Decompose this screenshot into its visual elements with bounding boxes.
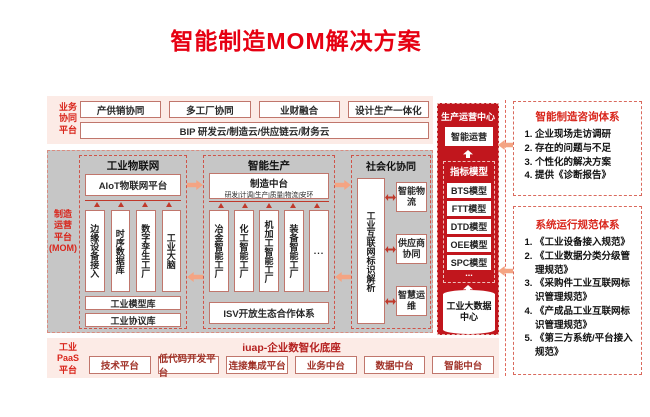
metrics-title: 指标模型 [447, 164, 491, 178]
identifier-resolution-box: 工业互联网标识解析 [357, 178, 385, 324]
paas-item-business: 业务中台 [295, 356, 357, 374]
link-arrow-icon [385, 194, 396, 201]
paas-item-ai: 智能中台 [432, 356, 494, 374]
mom-area: 制造 运营 平台 (MOM) 工业物联网 AIoT物联网平台 边缘设备接入 时序… [47, 150, 433, 333]
standards-list: 《工业设备接入规范》 《工业数据分类分级管理规范》 《采购件工业互联网标识管理规… [518, 236, 637, 360]
up-arrow-icon [463, 150, 473, 158]
ops-center-title: 生产运营中心 [438, 110, 498, 123]
hub-subtitle: 研发|计调|生产|质量|物流|安环 [213, 190, 325, 200]
paas-item-lowcode: 低代码开发平台 [158, 356, 220, 374]
iot-connector-arrows-icon [85, 200, 181, 209]
paas-title: iuap-企业数智化底座 [89, 340, 494, 355]
data-center-cylinder: 工业大数据中心 [443, 294, 495, 330]
consulting-item: 个性化的解决方案 [535, 156, 637, 170]
paas-item-tech: 技术平台 [89, 356, 151, 374]
standards-panel: 系统运行规范体系 《工业设备接入规范》 《工业数据分类分级管理规范》 《采购件工… [513, 206, 642, 375]
link-arrow-icon [385, 246, 396, 253]
production-pillar-more: ... [309, 210, 329, 292]
link-arrow-icon [385, 298, 396, 305]
production-pillar-chemical: 化工智能工厂 [234, 210, 254, 292]
aiot-platform-box: AIoT物联网平台 [85, 174, 181, 196]
standards-title: 系统运行规范体系 [518, 217, 637, 232]
iot-pillar-edge: 边缘设备接入 [85, 210, 105, 292]
model-library-box: 工业模型库 [85, 296, 181, 310]
divider-dashed-line [505, 100, 506, 376]
production-pillar-machining: 机加工智能工厂 [259, 210, 279, 292]
social-item-maintenance: 智慧运维 [396, 286, 427, 316]
business-item-finance: 业财融合 [259, 101, 340, 118]
social-item-logistics: 智能物流 [396, 182, 427, 212]
model-box-bts: BTS模型 [447, 183, 491, 198]
consulting-item: 提供《诊断报告》 [535, 169, 637, 183]
iot-pillar-brain: 工业大脑 [162, 210, 182, 292]
paas-band: 工业 PaaS 平台 iuap-企业数智化底座 技术平台 低代码开发平台 连接集… [47, 338, 499, 378]
flow-arrow-right-icon [187, 180, 203, 190]
iot-pillar-twin: 数字孪生工厂 [136, 210, 156, 292]
model-box-oee: OEE模型 [447, 237, 491, 252]
manufacturing-hub-box: 制造中台 研发|计调|生产|质量|物流|安环 [209, 173, 329, 199]
flow-arrow-left-icon [498, 266, 514, 276]
smart-ops-box: 智能运营 [445, 127, 493, 146]
social-section: 社会化协同 工业互联网标识解析 智能物流 供应商协同 智慧运维 [351, 155, 431, 329]
standards-item: 《工业设备接入规范》 [535, 236, 637, 250]
paas-band-label: 工业 PaaS 平台 [50, 342, 86, 376]
social-section-title: 社会化协同 [352, 158, 430, 173]
business-item-psx: 产供销协同 [80, 101, 161, 118]
business-item-multiplant: 多工厂协同 [169, 101, 250, 118]
business-band: 业务 协同 平台 产供销协同 多工厂协同 业财融合 设计生产一体化 BIP 研发… [47, 96, 433, 144]
flow-arrow-left-icon [187, 272, 203, 282]
standards-item: 《采购件工业互联网标识管理规范》 [535, 277, 637, 305]
slide: 智能制造MOM解决方案 业务 协同 平台 产供销协同 多工厂协同 业财融合 设计… [0, 0, 650, 417]
bip-cloud-box: BIP 研发云/制造云/供应链云/财务云 [80, 122, 429, 139]
production-pillar-metallurgy: 冶金智能工厂 [209, 210, 229, 292]
model-box-dtd: DTD模型 [447, 219, 491, 234]
consulting-item: 存在的问题与不足 [535, 142, 637, 156]
production-section: 智能生产 制造中台 研发|计调|生产|质量|物流|安环 冶金智能工厂 化工智能工… [203, 155, 335, 329]
paas-item-data: 数据中台 [364, 356, 426, 374]
iot-section-title: 工业物联网 [80, 158, 186, 173]
production-pillar-equipment: 装备智能工厂 [284, 210, 304, 292]
page-title: 智能制造MOM解决方案 [0, 22, 592, 56]
ops-center-column: 生产运营中心 智能运营 指标模型 BTS模型 FTT模型 DTD模型 OEE模型… [437, 103, 499, 335]
mom-label: 制造 运营 平台 (MOM) [48, 209, 78, 254]
production-section-title: 智能生产 [204, 158, 334, 173]
consulting-item: 企业现场走访调研 [535, 128, 637, 142]
metrics-group: 指标模型 BTS模型 FTT模型 DTD模型 OEE模型 SPC模型 ... [443, 161, 495, 283]
standards-item: 《产成品工业互联网标识管理规范》 [535, 305, 637, 333]
consulting-list: 企业现场走访调研 存在的问题与不足 个性化的解决方案 提供《诊断报告》 [518, 128, 637, 183]
flow-arrow-left-icon [335, 272, 351, 282]
models-ellipsis: ... [447, 270, 491, 276]
social-item-supplier: 供应商协同 [396, 234, 427, 264]
iot-pillar-tsdb: 时序数据库 [111, 210, 131, 292]
data-center-label: 工业大数据中心 [443, 294, 495, 330]
hub-title: 制造中台 [210, 176, 328, 190]
flow-arrow-right-icon [335, 180, 351, 190]
standards-item: 《第三方系统/平台接入规范》 [535, 332, 637, 360]
flow-arrow-left-icon [498, 140, 514, 150]
iot-section: 工业物联网 AIoT物联网平台 边缘设备接入 时序数据库 数字孪生工厂 工业大脑… [79, 155, 187, 329]
business-item-design: 设计生产一体化 [348, 101, 429, 118]
protocol-library-box: 工业协议库 [85, 313, 181, 327]
model-box-ftt: FTT模型 [447, 201, 491, 216]
consulting-title: 智能制造咨询体系 [518, 109, 637, 124]
standards-item: 《工业数据分类分级管理规范》 [535, 250, 637, 278]
isv-ecosystem-box: ISV开放生态合作体系 [209, 302, 329, 324]
paas-item-integration: 连接集成平台 [226, 356, 288, 374]
consulting-panel: 智能制造咨询体系 企业现场走访调研 存在的问题与不足 个性化的解决方案 提供《诊… [513, 101, 642, 196]
production-connector-arrows-icon [209, 201, 329, 209]
